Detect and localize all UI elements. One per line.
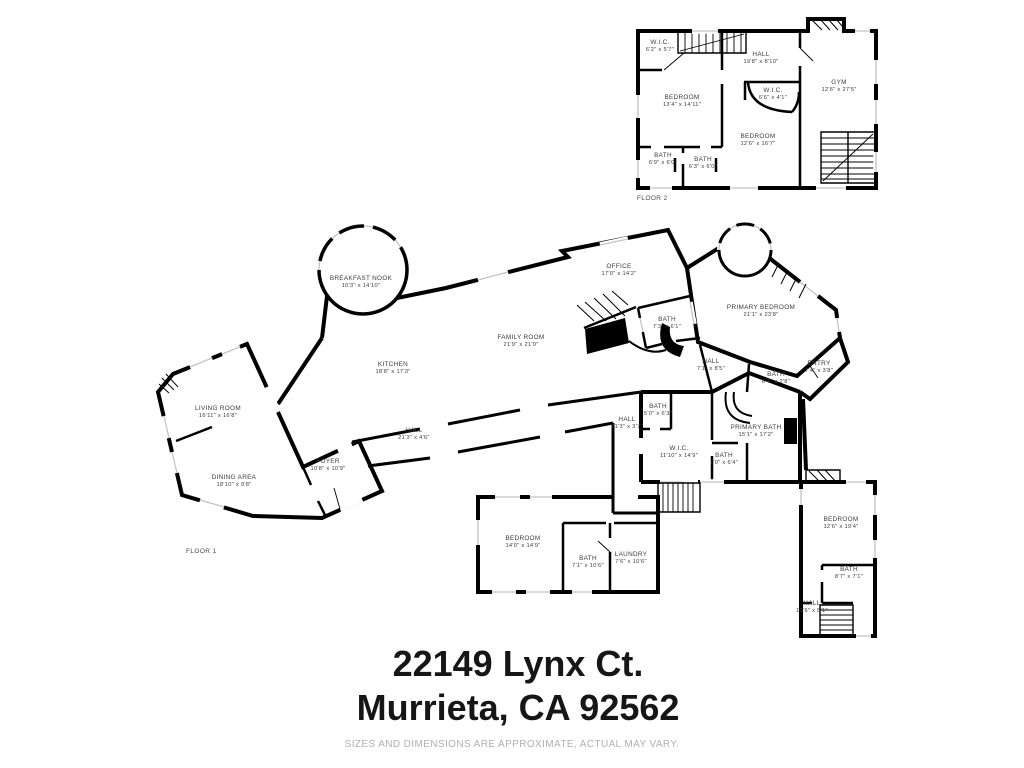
floor1-label: FLOOR 1	[186, 548, 217, 555]
room-name: HALL	[702, 358, 719, 365]
room-name: LIVING ROOM	[195, 405, 241, 412]
room-dims: 19'8" x 8'10"	[743, 59, 778, 65]
room-name: HALL	[618, 416, 635, 423]
room-dims: 6'2" x 5'7"	[646, 47, 674, 53]
room-name: HALL	[752, 51, 769, 58]
address-line1: 22149 Lynx Ct.	[393, 643, 644, 684]
room-dims: 12'6" x 16'7"	[740, 141, 775, 147]
room-dims: 7'0" x 6'4"	[710, 460, 738, 466]
room-dims: 7'3" x 6'1"	[653, 324, 681, 330]
room-name: BATH	[840, 566, 858, 573]
room-dims: 10'3" x 14'10"	[342, 283, 381, 289]
room-name: BATH	[658, 316, 676, 323]
address-line2: Murrieta, CA 92562	[357, 687, 680, 728]
floorplan-svg: W.I.C.6'2" x 5'7" BEDROOM13'4" x 14'11" …	[0, 0, 1024, 768]
primary-bedroom-turret	[719, 224, 771, 276]
room-name: BATH	[694, 156, 712, 163]
room-dims: 10'8" x 10'9"	[310, 466, 345, 472]
room-name: BATH	[767, 371, 785, 378]
room-name: PRIMARY BATH	[731, 424, 782, 431]
room-dims: 14'0" x 14'9"	[505, 543, 540, 549]
room-dims: 7'6" x 10'6"	[615, 559, 647, 565]
room-name: PRIMARY BEDROOM	[727, 304, 795, 311]
room-name: BATH	[715, 452, 733, 459]
room-dims: 12'6" x 27'5"	[821, 87, 856, 93]
disclaimer-text: SIZES AND DIMENSIONS ARE APPROXIMATE, AC…	[345, 739, 680, 750]
room-dims: 15'1" x 17'2"	[738, 432, 773, 438]
room-dims: 16'11" x 16'8"	[199, 413, 237, 419]
room-name: BREAKFAST NOOK	[330, 275, 393, 282]
room-name: BEDROOM	[505, 535, 540, 542]
room-name: KITCHEN	[378, 361, 408, 368]
room-name: LAUNDRY	[615, 551, 648, 558]
room-name: W.I.C.	[669, 445, 688, 452]
room-dims: 17'0" x 14'2"	[601, 271, 636, 277]
room-dims: 5'0" x 6'3"	[644, 411, 672, 417]
room-dims: 21'3" x 3'7"	[611, 424, 643, 430]
room-dims: 12'6" x 19'4"	[823, 524, 858, 530]
room-dims: 21'9" x 21'9"	[503, 342, 538, 348]
room-name: HALL	[405, 427, 422, 434]
room-name: FOYER	[316, 458, 340, 465]
room-name: FAMILY ROOM	[497, 334, 544, 341]
room-dims: 8'7" x 7'1"	[835, 574, 863, 580]
room-dims: 7'4" x 3'8"	[805, 368, 833, 374]
room-dims: 18'8" x 17'3"	[375, 369, 410, 375]
room-name: BEDROOM	[664, 94, 699, 101]
room-dims: 12'6" x 8'1"	[796, 608, 828, 614]
room-name: HALL	[803, 600, 820, 607]
room-name: BEDROOM	[740, 133, 775, 140]
room-dims: 6'4" x 2'8"	[762, 379, 790, 385]
floorplan-page: W.I.C.6'2" x 5'7" BEDROOM13'4" x 14'11" …	[0, 0, 1024, 768]
floor2-label: FLOOR 2	[637, 195, 668, 202]
room-dims: 11'10" x 14'9"	[660, 453, 698, 459]
room-dims: 7'1" x 10'6"	[572, 563, 604, 569]
room-dims: 21'1" x 23'8"	[743, 312, 778, 318]
room-name: BATH	[579, 555, 597, 562]
room-name: W.I.C.	[763, 87, 782, 94]
room-name: BATH	[649, 403, 667, 410]
room-dims: 6'6" x 4'1"	[759, 95, 787, 101]
room-dims: 6'9" x 6'0"	[649, 160, 677, 166]
room-dims: 7'1" x 8'5"	[697, 366, 725, 372]
room-dims: 6'3" x 6'0"	[689, 164, 717, 170]
room-dims: 13'4" x 14'11"	[663, 102, 701, 108]
room-name: OFFICE	[606, 263, 631, 270]
breakfast-nook-bay	[319, 226, 407, 314]
room-name: W.I.C.	[650, 39, 669, 46]
room-name: GYM	[831, 79, 846, 86]
room-name: BEDROOM	[823, 516, 858, 523]
room-dims: 21'3" x 4'6"	[398, 435, 430, 441]
room-name: ENTRY	[807, 360, 830, 367]
room-name: DINING AREA	[212, 474, 257, 481]
room-name: BATH	[654, 152, 672, 159]
room-dims: 18'10" x 9'8"	[216, 482, 251, 488]
